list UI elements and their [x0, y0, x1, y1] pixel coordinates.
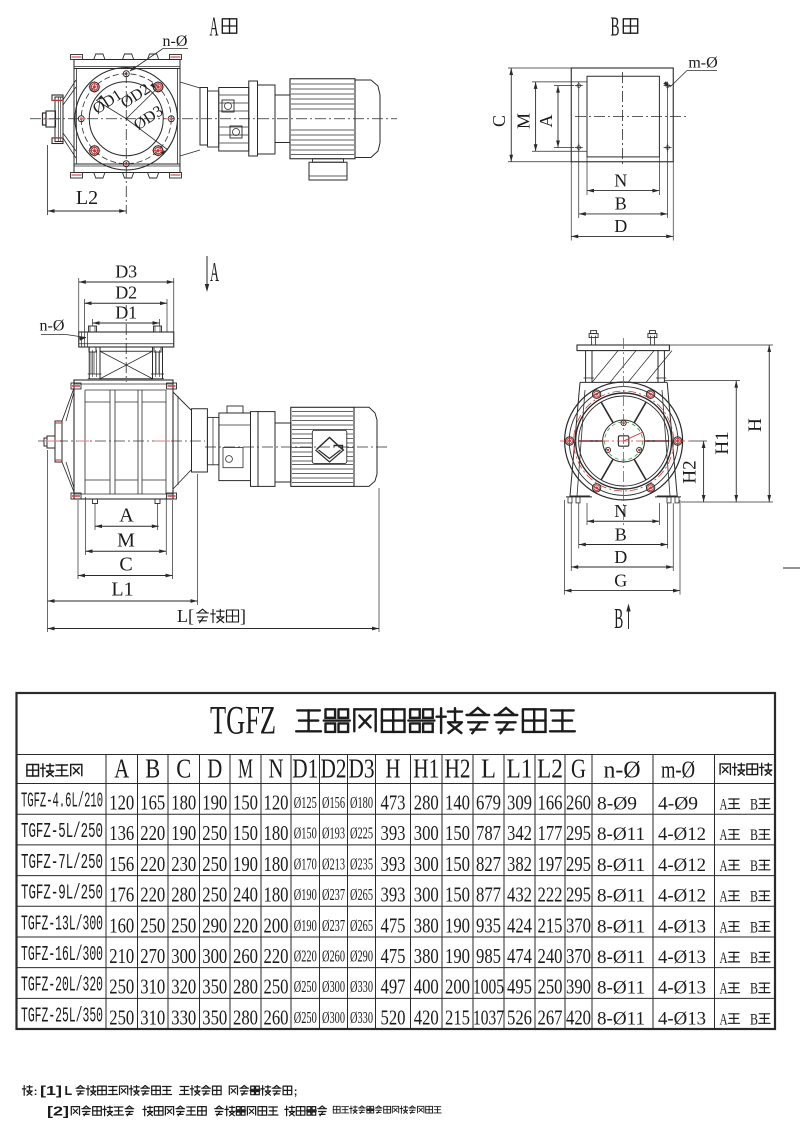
svg-text:G: G — [571, 753, 586, 784]
svg-text:B: B — [750, 889, 758, 906]
svg-text:Ø180: Ø180 — [350, 793, 373, 812]
svg-text:D: D — [614, 547, 627, 567]
svg-text:B: B — [750, 919, 758, 936]
svg-text:8-Ø11: 8-Ø11 — [597, 1008, 645, 1029]
svg-text:n-Ø: n-Ø — [163, 33, 188, 50]
svg-text:4-Ø12: 4-Ø12 — [658, 824, 706, 845]
svg-text:L: L — [481, 753, 496, 784]
svg-text:m-Ø: m-Ø — [688, 55, 717, 72]
svg-text:[1]: [1] — [40, 1084, 62, 1098]
svg-text:A: A — [536, 115, 556, 128]
svg-text:250: 250 — [140, 913, 165, 937]
svg-text:177: 177 — [538, 821, 563, 845]
svg-text:Ø250: Ø250 — [294, 1008, 317, 1027]
svg-text:679: 679 — [476, 791, 501, 815]
svg-text:280: 280 — [233, 1005, 258, 1029]
svg-text:N: N — [614, 501, 627, 521]
svg-text:473: 473 — [381, 791, 406, 815]
svg-text:Ø213: Ø213 — [322, 854, 345, 873]
svg-text:150: 150 — [445, 883, 470, 907]
svg-text:136: 136 — [109, 821, 134, 845]
svg-text:295: 295 — [566, 883, 591, 907]
svg-text:;: ; — [294, 1086, 298, 1098]
svg-text:215: 215 — [445, 1005, 470, 1029]
svg-text:1037: 1037 — [473, 1005, 504, 1029]
svg-text:210: 210 — [109, 944, 134, 968]
svg-text:474: 474 — [507, 944, 532, 968]
svg-text:250: 250 — [264, 975, 289, 999]
svg-text:H2: H2 — [445, 753, 471, 784]
svg-text:B: B — [750, 950, 758, 967]
svg-text:TGFZ-5L/250: TGFZ-5L/250 — [21, 821, 103, 844]
svg-text:390: 390 — [566, 975, 591, 999]
svg-text:166: 166 — [538, 791, 563, 815]
svg-text:280: 280 — [233, 975, 258, 999]
svg-text:400: 400 — [414, 975, 439, 999]
svg-text:497: 497 — [381, 975, 406, 999]
svg-text:380: 380 — [414, 944, 439, 968]
svg-text:310: 310 — [140, 1005, 165, 1029]
svg-text:475: 475 — [381, 913, 406, 937]
svg-text:310: 310 — [140, 975, 165, 999]
svg-text:M: M — [117, 530, 135, 552]
svg-text:TGFZ-25L/350: TGFZ-25L/350 — [21, 1005, 103, 1028]
svg-text:B: B — [615, 194, 627, 214]
svg-text:A: A — [720, 827, 728, 844]
svg-text:250: 250 — [202, 821, 227, 845]
svg-text:150: 150 — [233, 821, 258, 845]
svg-text:B: B — [750, 981, 758, 998]
svg-text:TGFZ-7L/250: TGFZ-7L/250 — [21, 852, 103, 875]
svg-text:230: 230 — [171, 852, 196, 876]
svg-text:L: L — [65, 1084, 73, 1098]
svg-text:Ø190: Ø190 — [294, 916, 317, 935]
svg-text:382: 382 — [507, 852, 532, 876]
svg-text:Ø150: Ø150 — [294, 824, 317, 843]
svg-text:250: 250 — [202, 883, 227, 907]
svg-text:D2: D2 — [115, 283, 137, 303]
svg-text:250: 250 — [109, 975, 134, 999]
svg-text:B: B — [750, 827, 758, 844]
svg-text:B: B — [750, 797, 758, 814]
svg-text:220: 220 — [264, 944, 289, 968]
svg-text:n-Ø: n-Ø — [40, 318, 65, 335]
svg-text:TGFZ-9L/250: TGFZ-9L/250 — [21, 883, 103, 906]
svg-text:250: 250 — [538, 975, 563, 999]
svg-text:250: 250 — [109, 1005, 134, 1029]
svg-text:N: N — [269, 753, 284, 784]
svg-text:380: 380 — [414, 913, 439, 937]
svg-text:260: 260 — [233, 944, 258, 968]
svg-text:B: B — [611, 12, 620, 42]
svg-text:Ø235: Ø235 — [350, 854, 373, 873]
svg-text:280: 280 — [414, 791, 439, 815]
svg-text:190: 190 — [171, 821, 196, 845]
svg-text:280: 280 — [171, 883, 196, 907]
svg-text:Ø300: Ø300 — [322, 977, 345, 996]
svg-text:150: 150 — [445, 852, 470, 876]
svg-text:M: M — [514, 113, 534, 129]
svg-text:H2: H2 — [680, 460, 701, 483]
svg-text:295: 295 — [566, 821, 591, 845]
svg-text:TGFZ-13L/300: TGFZ-13L/300 — [21, 913, 103, 936]
svg-text:8-Ø11: 8-Ø11 — [597, 978, 645, 999]
svg-text:877: 877 — [476, 883, 501, 907]
svg-text:827: 827 — [476, 852, 501, 876]
svg-text:220: 220 — [140, 852, 165, 876]
svg-text:320: 320 — [171, 975, 196, 999]
svg-text:250: 250 — [171, 913, 196, 937]
svg-text:190: 190 — [445, 913, 470, 937]
svg-text::: : — [34, 1086, 38, 1098]
svg-text:Ø237: Ø237 — [322, 885, 345, 904]
svg-text:420: 420 — [566, 1005, 591, 1029]
svg-text:A: A — [720, 919, 728, 936]
svg-text:Ø300: Ø300 — [322, 1008, 345, 1027]
svg-text:393: 393 — [381, 821, 406, 845]
svg-text:A: A — [210, 257, 219, 287]
svg-text:B: B — [614, 604, 623, 635]
svg-text:475: 475 — [381, 944, 406, 968]
svg-text:H: H — [745, 418, 766, 432]
svg-text:150: 150 — [233, 791, 258, 815]
svg-text:A: A — [210, 12, 219, 42]
svg-text:350: 350 — [202, 1005, 227, 1029]
svg-text:8-Ø11: 8-Ø11 — [597, 824, 645, 845]
svg-text:180: 180 — [171, 791, 196, 815]
svg-text:180: 180 — [264, 821, 289, 845]
svg-text:160: 160 — [109, 913, 134, 937]
svg-text:D1: D1 — [115, 303, 137, 323]
svg-text:165: 165 — [140, 791, 165, 815]
svg-text:393: 393 — [381, 852, 406, 876]
svg-text:495: 495 — [507, 975, 532, 999]
svg-text:156: 156 — [109, 852, 134, 876]
svg-text:240: 240 — [233, 883, 258, 907]
svg-text:240: 240 — [538, 944, 563, 968]
svg-text:G: G — [614, 571, 627, 591]
svg-text:Ø190: Ø190 — [294, 885, 317, 904]
svg-text:Ø237: Ø237 — [322, 916, 345, 935]
svg-text:350: 350 — [202, 975, 227, 999]
svg-text:D: D — [207, 753, 222, 784]
svg-text:260: 260 — [566, 791, 591, 815]
svg-text:393: 393 — [381, 883, 406, 907]
svg-text:H1: H1 — [712, 431, 733, 454]
svg-text:295: 295 — [566, 852, 591, 876]
svg-text:Ø225: Ø225 — [350, 824, 373, 843]
svg-text:300: 300 — [414, 883, 439, 907]
svg-text:Ø330: Ø330 — [350, 977, 373, 996]
svg-text:C: C — [489, 115, 509, 127]
svg-text:D2: D2 — [321, 753, 347, 784]
svg-text:370: 370 — [566, 944, 591, 968]
svg-text:300: 300 — [171, 944, 196, 968]
svg-text:370: 370 — [566, 913, 591, 937]
svg-text:220: 220 — [233, 913, 258, 937]
svg-text:260: 260 — [264, 1005, 289, 1029]
svg-text:Ø250: Ø250 — [294, 977, 317, 996]
svg-text:190: 190 — [202, 791, 227, 815]
svg-text:A: A — [720, 889, 728, 906]
svg-text:222: 222 — [538, 883, 563, 907]
svg-text:Ø330: Ø330 — [350, 1008, 373, 1027]
svg-text:n-Ø: n-Ø — [604, 758, 641, 784]
svg-text:8-Ø11: 8-Ø11 — [597, 855, 645, 876]
svg-text:A: A — [720, 950, 728, 967]
svg-text:197: 197 — [538, 852, 563, 876]
svg-text:4-Ø12: 4-Ø12 — [658, 886, 706, 907]
svg-text:200: 200 — [264, 913, 289, 937]
svg-text:4-Ø9: 4-Ø9 — [658, 794, 698, 815]
svg-text:290: 290 — [202, 913, 227, 937]
svg-text:Ø170: Ø170 — [294, 854, 317, 873]
svg-text:A: A — [114, 753, 129, 784]
svg-text:270: 270 — [140, 944, 165, 968]
svg-text:L2: L2 — [76, 187, 98, 209]
svg-text:4-Ø13: 4-Ø13 — [658, 947, 706, 968]
svg-text:220: 220 — [140, 821, 165, 845]
svg-text:120: 120 — [109, 791, 134, 815]
svg-text:1005: 1005 — [473, 975, 504, 999]
svg-text:A: A — [720, 1011, 728, 1028]
svg-text:935: 935 — [476, 913, 501, 937]
svg-text:N: N — [614, 171, 627, 191]
svg-text:m-Ø: m-Ø — [661, 758, 695, 784]
svg-text:180: 180 — [264, 852, 289, 876]
svg-text:H: H — [386, 753, 401, 784]
svg-text:4-Ø12: 4-Ø12 — [658, 855, 706, 876]
svg-text:330: 330 — [171, 1005, 196, 1029]
svg-text:B: B — [615, 525, 627, 545]
svg-text:L1: L1 — [111, 579, 133, 601]
svg-text:526: 526 — [507, 1005, 532, 1029]
svg-text:300: 300 — [414, 852, 439, 876]
svg-text:A: A — [119, 505, 134, 527]
svg-text:Ø125: Ø125 — [294, 793, 317, 812]
svg-text:]: ] — [240, 606, 246, 626]
svg-text:150: 150 — [445, 821, 470, 845]
svg-text:TGFZ-20L/320: TGFZ-20L/320 — [21, 975, 103, 998]
svg-text:M: M — [238, 753, 253, 784]
svg-text:190: 190 — [233, 852, 258, 876]
svg-text:190: 190 — [445, 944, 470, 968]
svg-text:A: A — [720, 858, 728, 875]
svg-text:8-Ø11: 8-Ø11 — [597, 886, 645, 907]
svg-text:4-Ø13: 4-Ø13 — [658, 916, 706, 937]
svg-text:8-Ø11: 8-Ø11 — [597, 947, 645, 968]
svg-text:L1: L1 — [507, 753, 533, 784]
svg-text:L2: L2 — [537, 753, 563, 784]
svg-text:B: B — [145, 753, 160, 784]
svg-text:4-Ø13: 4-Ø13 — [658, 1008, 706, 1029]
svg-text:200: 200 — [445, 975, 470, 999]
svg-text:985: 985 — [476, 944, 501, 968]
svg-text:432: 432 — [507, 883, 532, 907]
svg-text:D: D — [614, 216, 627, 236]
svg-text:Ø193: Ø193 — [322, 824, 345, 843]
svg-text:309: 309 — [507, 791, 532, 815]
svg-text:4-Ø13: 4-Ø13 — [658, 978, 706, 999]
svg-text:A: A — [720, 981, 728, 998]
svg-text:180: 180 — [264, 883, 289, 907]
svg-text:176: 176 — [109, 883, 134, 907]
svg-text:300: 300 — [202, 944, 227, 968]
svg-text:B: B — [750, 858, 758, 875]
svg-text:Ø265: Ø265 — [350, 916, 373, 935]
svg-text:300: 300 — [414, 821, 439, 845]
svg-text:8-Ø11: 8-Ø11 — [597, 916, 645, 937]
svg-text:[2]: [2] — [47, 1105, 69, 1119]
svg-text:Ø265: Ø265 — [350, 885, 373, 904]
svg-text:787: 787 — [476, 821, 501, 845]
svg-text:Ø220: Ø220 — [294, 946, 317, 965]
svg-text:120: 120 — [264, 791, 289, 815]
svg-text:TGFZ-16L/300: TGFZ-16L/300 — [21, 944, 103, 967]
svg-text:C: C — [119, 554, 132, 576]
svg-text:520: 520 — [381, 1005, 406, 1029]
svg-text:D3: D3 — [349, 753, 375, 784]
svg-text:TGFZ-4.6L/210: TGFZ-4.6L/210 — [21, 791, 103, 814]
svg-text:A: A — [720, 797, 728, 814]
svg-text:267: 267 — [538, 1005, 563, 1029]
svg-text:L[: L[ — [177, 606, 194, 626]
svg-text:TGFZ: TGFZ — [210, 698, 276, 743]
svg-text:420: 420 — [414, 1005, 439, 1029]
svg-text:Ø290: Ø290 — [350, 946, 373, 965]
svg-text:342: 342 — [507, 821, 532, 845]
svg-text:140: 140 — [445, 791, 470, 815]
svg-text:Ø260: Ø260 — [322, 946, 345, 965]
svg-text:B: B — [750, 1011, 758, 1028]
svg-text:215: 215 — [538, 913, 563, 937]
svg-text:D3: D3 — [115, 262, 137, 282]
svg-text:424: 424 — [507, 913, 532, 937]
svg-text:220: 220 — [140, 883, 165, 907]
svg-text:H1: H1 — [413, 753, 439, 784]
svg-text:Ø156: Ø156 — [322, 793, 345, 812]
svg-text:D1: D1 — [292, 753, 318, 784]
svg-text:C: C — [176, 753, 191, 784]
svg-text:8-Ø9: 8-Ø9 — [597, 794, 637, 815]
svg-text:250: 250 — [202, 852, 227, 876]
